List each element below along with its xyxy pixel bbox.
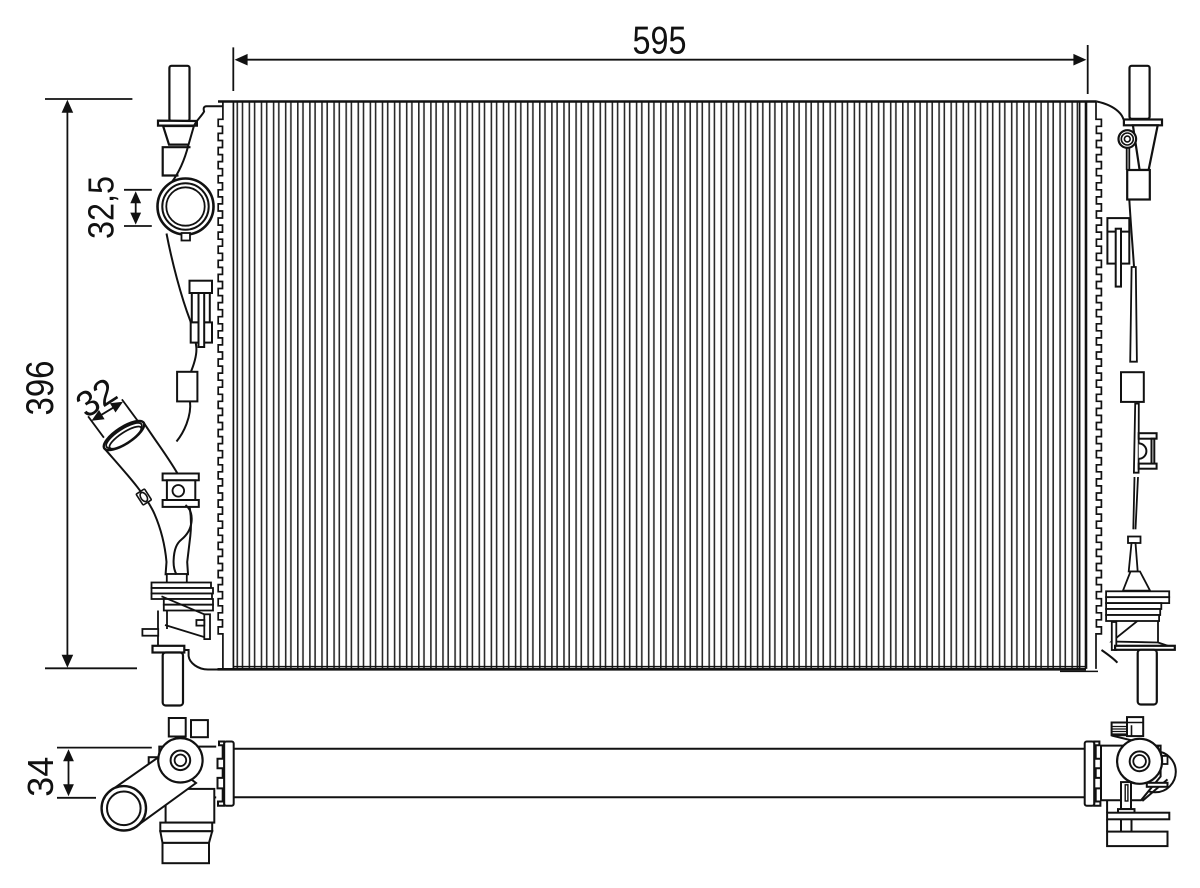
- svg-text:396: 396: [19, 361, 62, 416]
- svg-text:32,5: 32,5: [81, 176, 122, 239]
- svg-text:34: 34: [20, 757, 61, 797]
- svg-text:595: 595: [633, 20, 687, 63]
